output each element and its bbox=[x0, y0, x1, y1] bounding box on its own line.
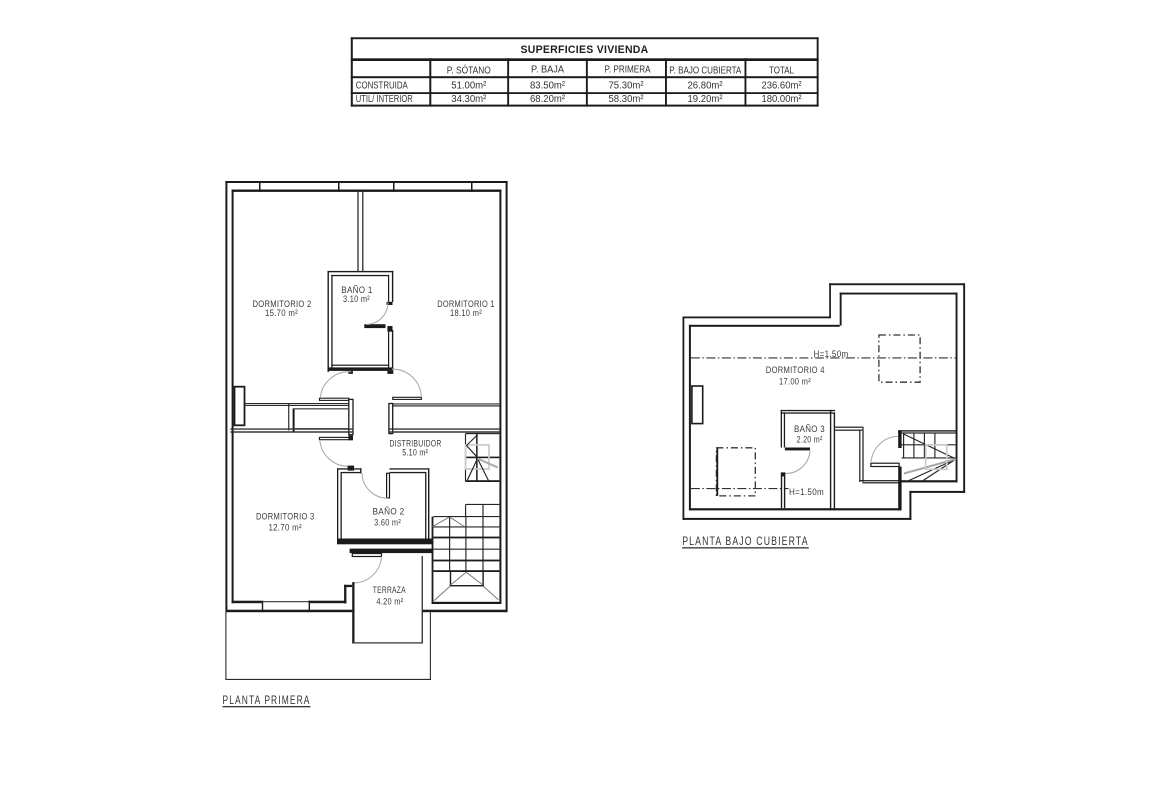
svg-text:180.00m²: 180.00m² bbox=[762, 94, 803, 105]
svg-text:19.20m²: 19.20m² bbox=[688, 94, 724, 105]
svg-text:18.10 m²: 18.10 m² bbox=[450, 308, 482, 318]
svg-text:26.80m²: 26.80m² bbox=[688, 81, 724, 92]
svg-text:ÚTIL/ INTERIOR: ÚTIL/ INTERIOR bbox=[356, 92, 413, 105]
svg-text:12.70 m²: 12.70 m² bbox=[268, 522, 302, 532]
svg-text:83.50m²: 83.50m² bbox=[530, 81, 566, 92]
svg-text:17.00 m²: 17.00 m² bbox=[779, 376, 811, 386]
svg-text:3.10 m²: 3.10 m² bbox=[343, 294, 370, 304]
svg-text:58.30m²: 58.30m² bbox=[609, 94, 645, 105]
svg-text:P. PRIMERA: P. PRIMERA bbox=[605, 65, 651, 76]
svg-text:P. SÓTANO: P. SÓTANO bbox=[447, 63, 491, 76]
svg-text:15.70 m²: 15.70 m² bbox=[265, 308, 298, 318]
svg-text:DORMITORIO 3: DORMITORIO 3 bbox=[256, 512, 315, 522]
svg-text:75.30m²: 75.30m² bbox=[609, 81, 645, 92]
svg-text:P. BAJO CUBIERTA: P. BAJO CUBIERTA bbox=[669, 65, 741, 76]
svg-text:TERRAZA: TERRAZA bbox=[373, 585, 406, 595]
svg-text:H=1.50m: H=1.50m bbox=[814, 349, 849, 359]
svg-text:5.10 m²: 5.10 m² bbox=[402, 448, 428, 458]
svg-text:P. BAJA: P. BAJA bbox=[531, 65, 564, 76]
svg-text:TOTAL: TOTAL bbox=[769, 65, 794, 76]
svg-text:SUPERFICIES VIVIENDA: SUPERFICIES VIVIENDA bbox=[521, 44, 649, 56]
svg-text:34.30m²: 34.30m² bbox=[451, 94, 487, 105]
svg-text:51.00m²: 51.00m² bbox=[451, 81, 487, 92]
svg-text:DORMITORIO 4: DORMITORIO 4 bbox=[766, 365, 825, 375]
svg-text:236.60m²: 236.60m² bbox=[762, 81, 803, 92]
svg-text:CONSTRUIDA: CONSTRUIDA bbox=[356, 81, 408, 92]
svg-text:3.60 m²: 3.60 m² bbox=[374, 518, 401, 528]
svg-text:BAÑO 2: BAÑO 2 bbox=[373, 506, 405, 516]
svg-text:PLANTA BAJO CUBIERTA: PLANTA BAJO CUBIERTA bbox=[682, 536, 809, 548]
svg-text:PLANTA PRIMERA: PLANTA PRIMERA bbox=[223, 695, 311, 707]
svg-text:H=1.50m: H=1.50m bbox=[789, 487, 824, 497]
svg-text:4.20 m²: 4.20 m² bbox=[376, 597, 403, 607]
svg-text:BAÑO 3: BAÑO 3 bbox=[794, 424, 825, 434]
svg-text:2.20 m²: 2.20 m² bbox=[797, 435, 823, 445]
svg-text:68.20m²: 68.20m² bbox=[530, 94, 566, 105]
